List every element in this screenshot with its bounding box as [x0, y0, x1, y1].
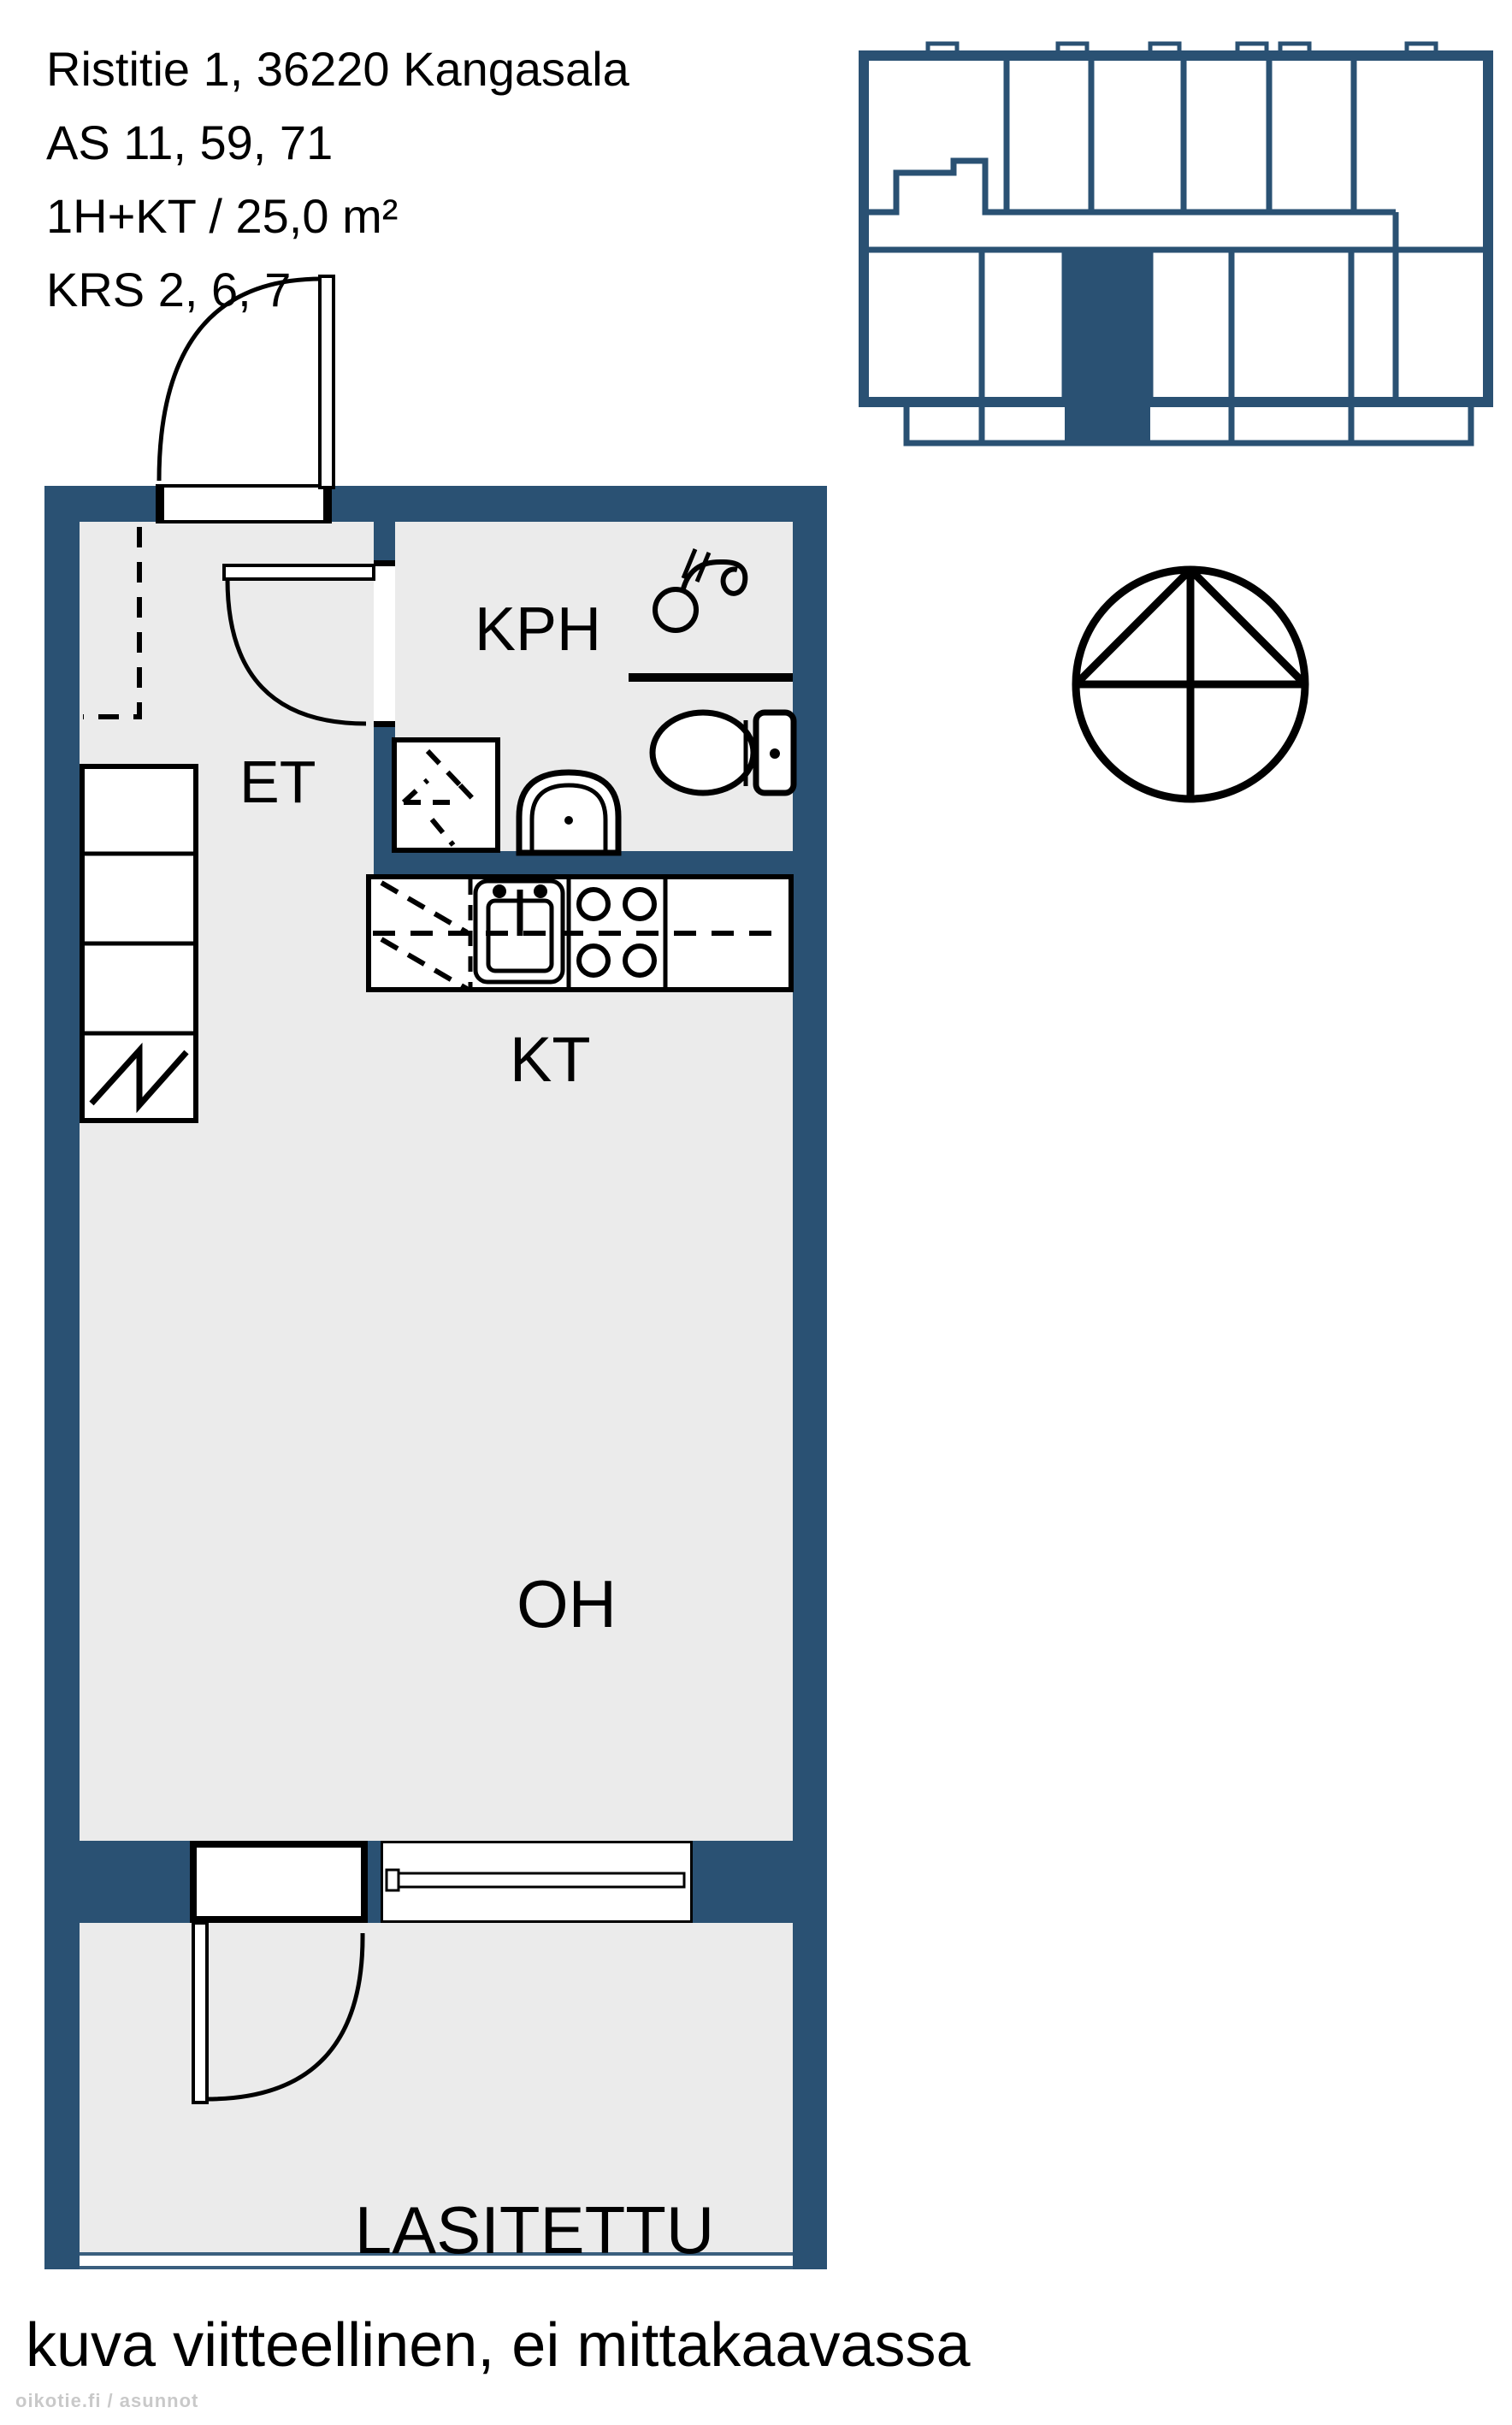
entry-door — [159, 276, 334, 488]
et-dashed-guide — [83, 527, 139, 717]
room-label-bathroom: KPH — [475, 599, 601, 660]
shower-icon — [655, 549, 745, 630]
site-plan-highlighted-unit — [1065, 250, 1150, 443]
wardrobe-dividers — [81, 854, 197, 1033]
disclaimer-text: kuva viitteellinen, ei mittakaavassa — [26, 2315, 971, 2376]
balcony-label-line2: PARVEKE — [295, 2414, 774, 2425]
bathroom-door — [224, 565, 374, 724]
toilet-icon — [653, 713, 794, 793]
room-label-entrance: ET — [239, 752, 316, 812]
watermark-text: oikotie.fi / asunnot — [15, 2390, 198, 2412]
balcony-label-line1: LASITETTU — [295, 2193, 774, 2267]
site-plan — [864, 44, 1488, 443]
north-arrow-icon — [1076, 570, 1305, 799]
room-label-kitchen: KT — [510, 1028, 591, 1091]
washbasin-icon — [519, 772, 618, 853]
room-label-living: OH — [517, 1570, 617, 1637]
washer-reservation-icon — [404, 751, 475, 845]
floor-plan-page: Ristitie 1, 36220 Kangasala AS 11, 59, 7… — [0, 0, 1512, 2425]
coat-rack-icon — [92, 1050, 186, 1105]
kitchen-sink-icon — [475, 881, 563, 982]
window-glass-bar — [387, 1870, 684, 1890]
